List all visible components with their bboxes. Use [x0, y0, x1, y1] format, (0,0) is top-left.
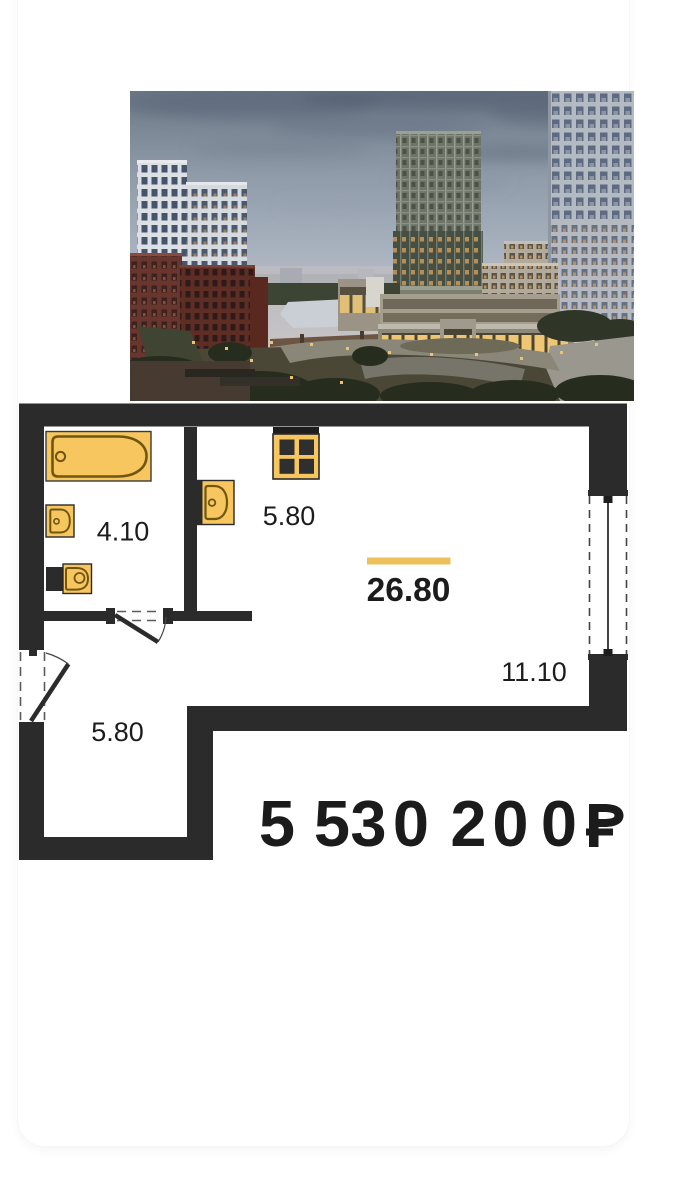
- svg-text:5530200: 5530200: [259, 787, 577, 860]
- svg-text:26.80: 26.80: [367, 572, 451, 609]
- svg-text:5.80: 5.80: [263, 501, 316, 531]
- svg-text:4.10: 4.10: [97, 517, 150, 547]
- svg-text:5.80: 5.80: [91, 717, 144, 747]
- svg-text:11.10: 11.10: [501, 657, 567, 687]
